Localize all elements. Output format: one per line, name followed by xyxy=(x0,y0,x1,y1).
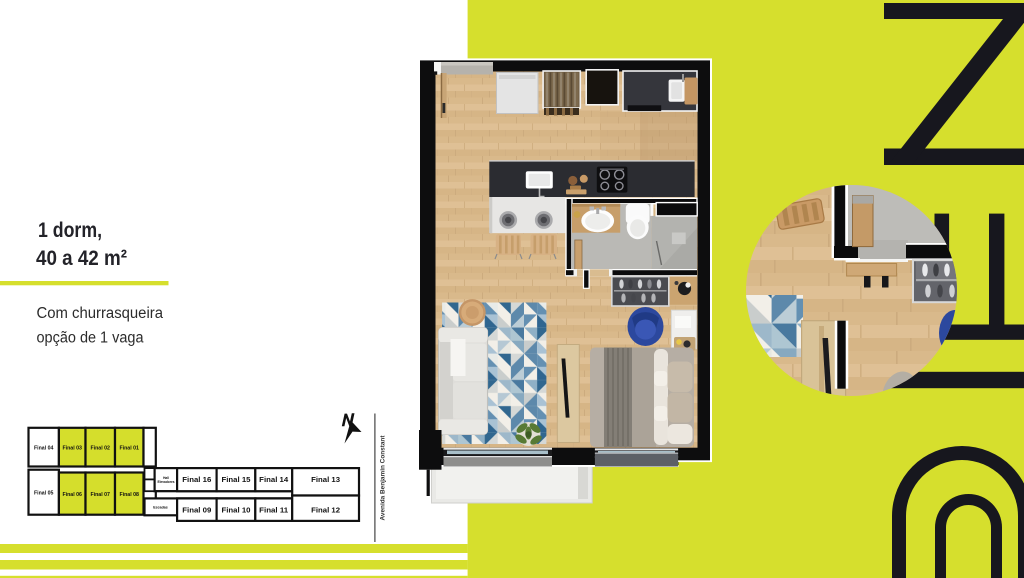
svg-text:Final 14: Final 14 xyxy=(259,477,288,484)
svg-text:opção de 1 vaga: opção de 1 vaga xyxy=(37,330,144,347)
svg-text:Final 10: Final 10 xyxy=(222,508,251,515)
svg-text:Final 03: Final 03 xyxy=(62,446,82,452)
svg-text:Final 06: Final 06 xyxy=(62,492,82,498)
svg-text:Final 09: Final 09 xyxy=(182,508,211,515)
svg-text:Final 13: Final 13 xyxy=(311,477,340,484)
svg-text:Elevadores: Elevadores xyxy=(157,480,174,484)
svg-text:Final 01: Final 01 xyxy=(119,446,139,452)
svg-text:Avenida Benjamin Constant: Avenida Benjamin Constant xyxy=(380,435,387,521)
svg-text:Final 11: Final 11 xyxy=(259,508,288,515)
svg-text:Final 04: Final 04 xyxy=(34,446,54,452)
svg-text:Final 15: Final 15 xyxy=(222,477,251,484)
svg-text:Final 16: Final 16 xyxy=(182,477,211,484)
svg-text:40 a 42 m²: 40 a 42 m² xyxy=(36,246,127,270)
svg-text:1 dorm,: 1 dorm, xyxy=(38,218,102,242)
svg-text:Final 07: Final 07 xyxy=(90,492,110,498)
svg-text:Final 12: Final 12 xyxy=(311,508,340,515)
svg-text:Com churrasqueira: Com churrasqueira xyxy=(37,305,164,322)
svg-text:Escadas: Escadas xyxy=(153,506,168,510)
svg-text:Final 08: Final 08 xyxy=(119,492,139,498)
svg-text:Final 02: Final 02 xyxy=(90,446,110,452)
svg-text:Final 05: Final 05 xyxy=(34,491,54,497)
